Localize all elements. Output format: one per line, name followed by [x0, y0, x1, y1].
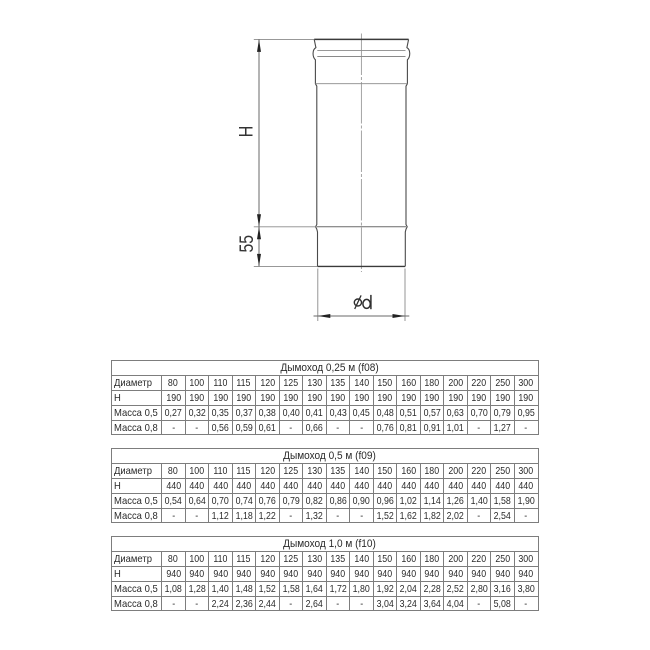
svg-text:55: 55	[237, 235, 258, 253]
svg-text:H: H	[236, 126, 257, 138]
